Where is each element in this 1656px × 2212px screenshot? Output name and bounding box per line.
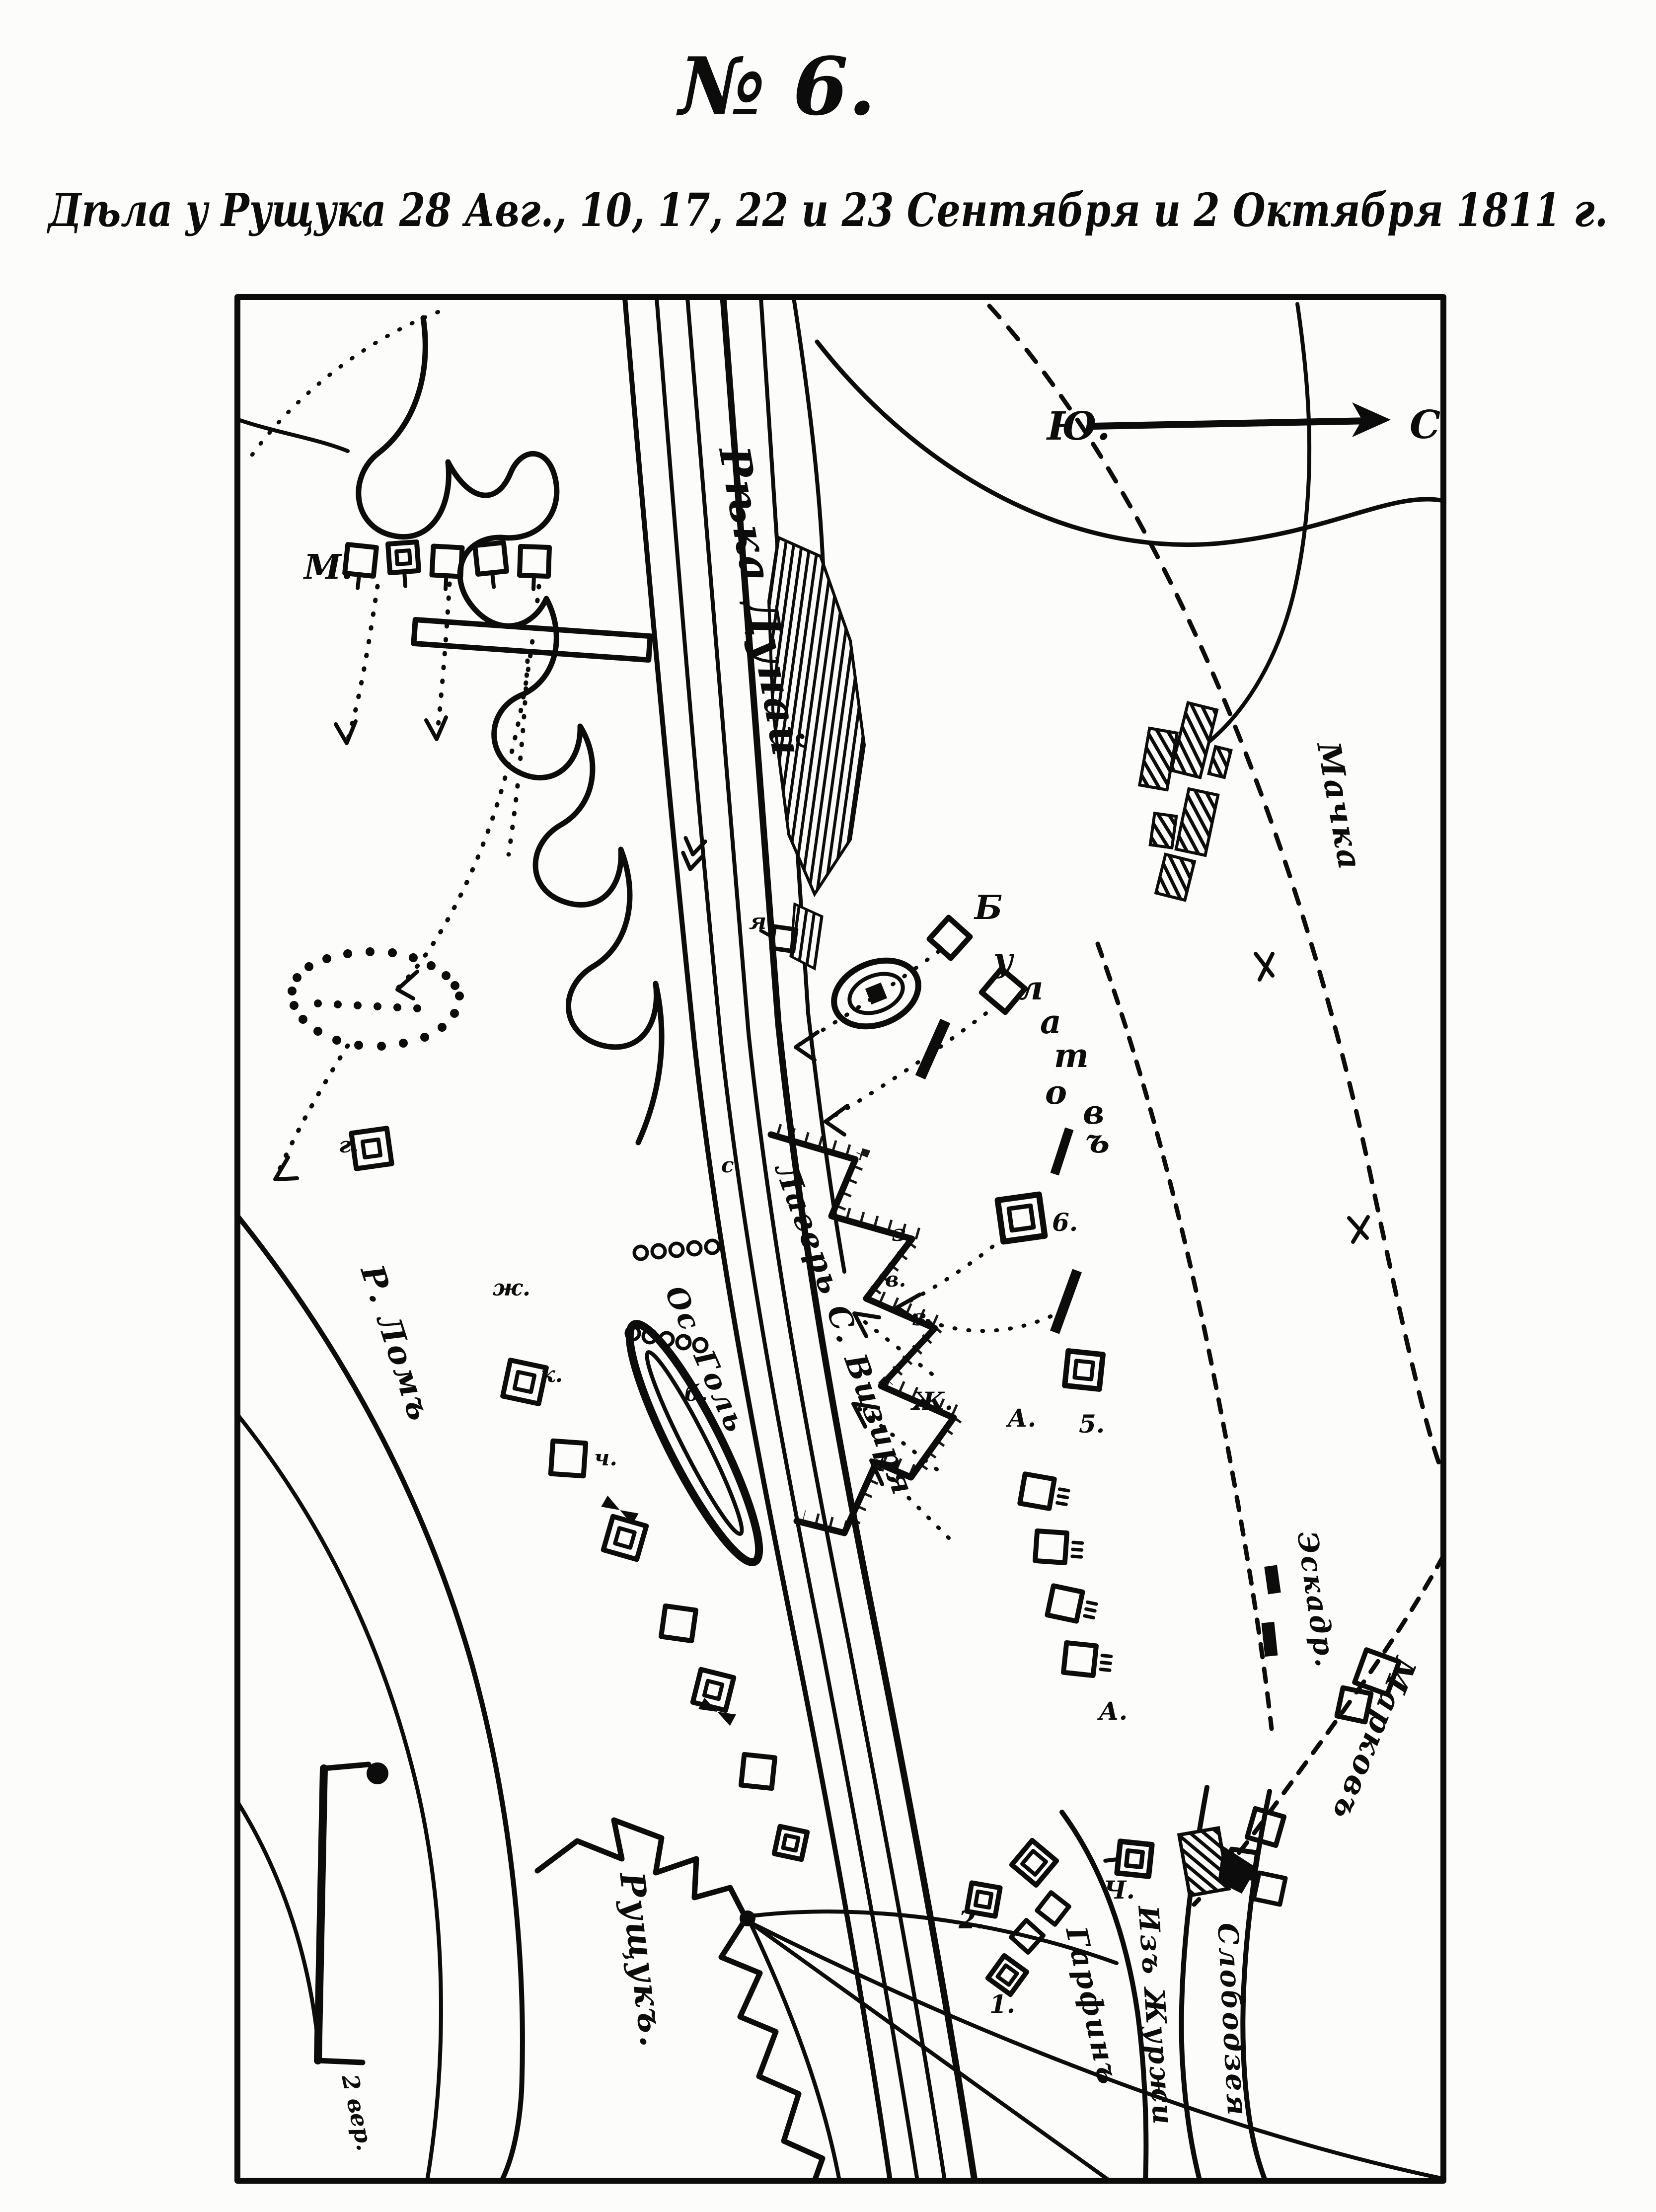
compass-north-label: С.	[1410, 402, 1454, 448]
label-markov: Марковъ	[1325, 1652, 1424, 1827]
map-canvas: № 6. Дѣла у Рущука 28 Авг., 10, 17, 22 и…	[0, 0, 1656, 2212]
label-river-lom: Р. Ломъ	[353, 1260, 439, 1427]
point-label: к.	[540, 1362, 563, 1387]
movement-trails	[275, 584, 539, 1179]
label-machka: Мачка	[1309, 738, 1369, 874]
cavalry-bars	[1262, 1565, 1281, 1657]
corner-stream	[238, 420, 348, 451]
terrace-line	[817, 342, 1443, 545]
battery-chain	[503, 1360, 807, 1859]
label-ruschuk: Рущукъ.	[611, 1869, 673, 2051]
corner-trail	[246, 312, 438, 463]
ravine-bluffs	[359, 318, 662, 1143]
point-label: 1.	[989, 1989, 1015, 2019]
point-label: в.	[885, 1267, 906, 1292]
point-label: 5.	[1079, 1409, 1105, 1439]
slobodzeya-village	[1179, 1828, 1285, 1905]
fort-ch	[1104, 1840, 1152, 1876]
compass	[1093, 402, 1391, 437]
lom-river-curves	[238, 1217, 523, 2181]
point-label: з.	[892, 1220, 914, 1246]
point-label: г.	[339, 1133, 359, 1158]
battery-row-m	[343, 542, 650, 660]
point-label: я.	[749, 909, 774, 934]
point-label: А.	[1005, 1403, 1036, 1433]
point-label: з.	[912, 1304, 934, 1331]
scattered-letter: ъ	[1086, 1122, 1110, 1160]
label-m-battery: М.	[303, 547, 353, 587]
compass-south-label: Ю.	[1046, 404, 1111, 449]
point-label: с.	[721, 1153, 741, 1177]
point-label: 6.	[1052, 1208, 1078, 1237]
bivouac-dot-oval	[288, 947, 464, 1051]
scattered-letter: о	[1045, 1073, 1067, 1112]
point-label: ч.	[594, 1446, 617, 1471]
point-label: Ч.	[1104, 1875, 1135, 1905]
scattered-letter: Б	[974, 888, 1002, 927]
label-eskadr: Эскадр.	[1290, 1529, 1342, 1671]
scanned-map-page: № 6. Дѣла у Рущука 28 Авг., 10, 17, 22 и…	[0, 0, 1656, 2212]
infantry-column	[1020, 1474, 1112, 1677]
scale-label: 2 вер.	[336, 2071, 378, 2153]
point-label: ж.	[493, 1274, 530, 1301]
point-label: А.	[1097, 1696, 1128, 1726]
point-label: Ж.	[910, 1386, 953, 1416]
page-subtitle: Дѣла у Рущука 28 Авг., 10, 17, 22 и 23 С…	[47, 183, 1608, 237]
point-label: б.	[684, 1381, 708, 1406]
point-label: 2.	[958, 1905, 984, 1934]
scattered-letter: у	[992, 940, 1015, 979]
scale-bar	[318, 1762, 388, 2062]
page-title: № 6.	[676, 40, 876, 133]
oval-fort	[824, 949, 928, 1039]
scattered-letter: л	[1019, 969, 1043, 1007]
scattered-letter: а	[1040, 1002, 1061, 1041]
scattered-word-letters: Б у л а т о в ъ	[974, 888, 1110, 1160]
scattered-letter: т	[1054, 1036, 1089, 1075]
